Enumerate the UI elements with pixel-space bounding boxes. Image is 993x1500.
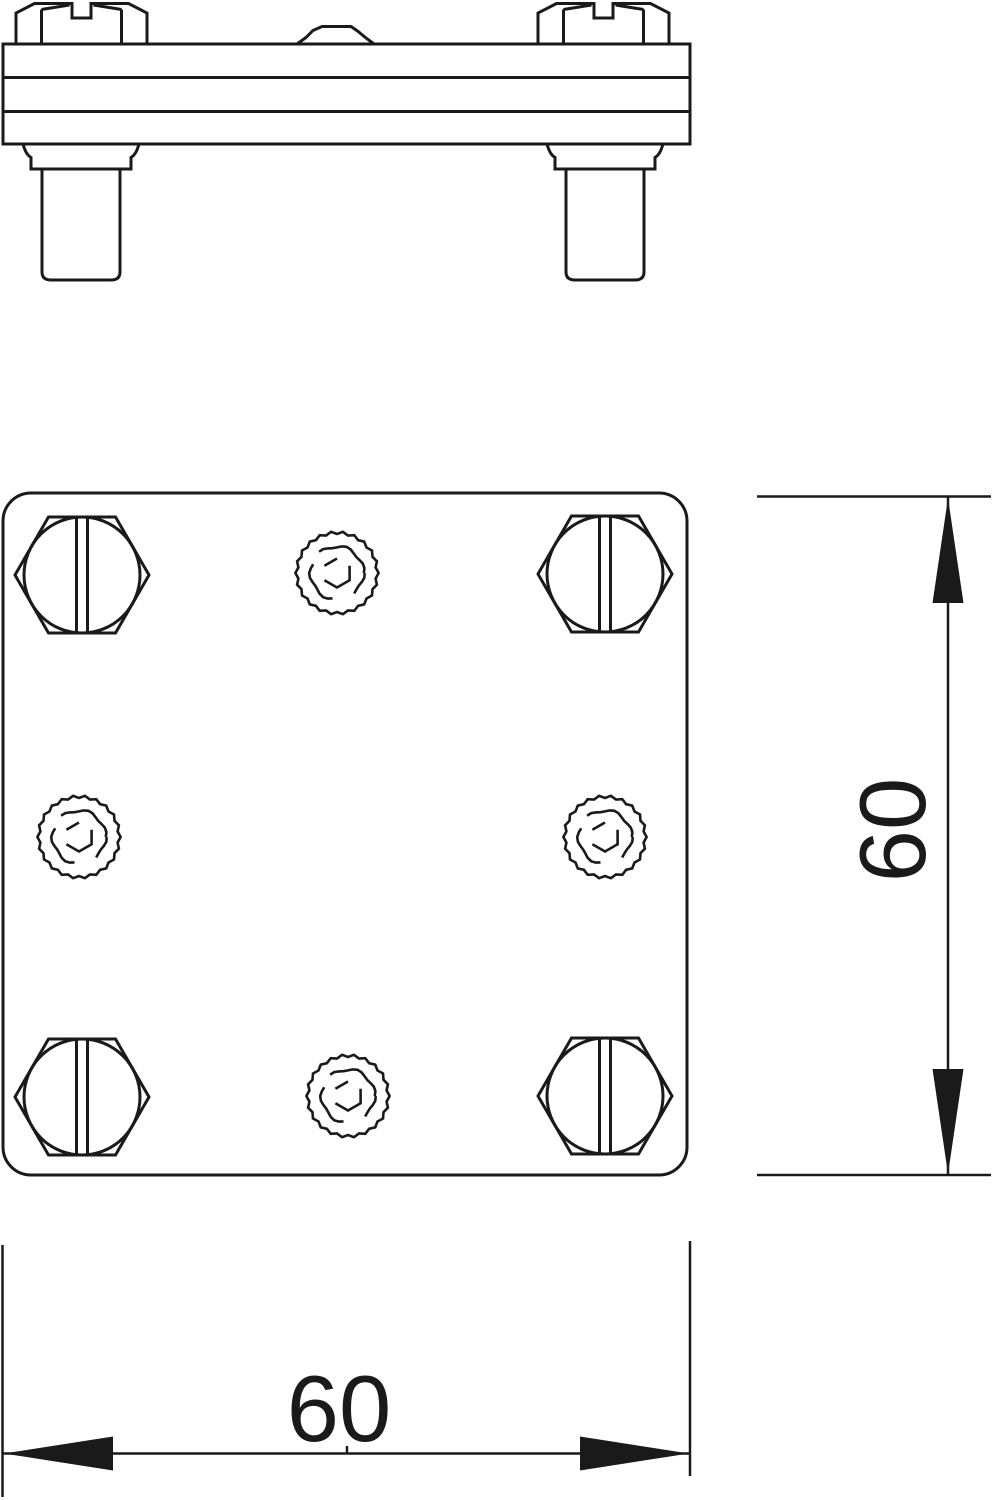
height-dimension: 60 — [757, 497, 991, 1176]
knurled-point-left-icon — [37, 796, 120, 878]
knurled-point-right-icon — [563, 796, 646, 878]
knurled-point-bottom-icon — [306, 1055, 389, 1137]
arrowhead-left-icon — [4, 1437, 113, 1471]
technical-drawing-page: 60 60 — [0, 0, 993, 1500]
width-dimension-label: 60 — [287, 1356, 392, 1461]
height-dimension-label: 60 — [840, 778, 945, 883]
screw-head-right-icon — [538, 4, 669, 45]
arrowhead-down-icon — [933, 1069, 964, 1174]
width-dimension: 60 — [3, 1241, 691, 1497]
knurled-boss-profile — [297, 27, 374, 45]
knurled-point-top-icon — [295, 532, 378, 614]
plan-view — [3, 493, 687, 1175]
connector-drawing: 60 60 — [0, 0, 993, 1500]
hex-bolt-top-left-icon — [15, 517, 149, 633]
side-view — [3, 4, 690, 281]
screw-head-left-icon — [16, 4, 147, 45]
hex-bolt-bottom-right-icon — [538, 1038, 672, 1154]
arrowhead-right-icon — [580, 1437, 689, 1471]
hex-bolt-top-right-icon — [538, 516, 672, 632]
arrowhead-up-icon — [933, 498, 964, 603]
hex-bolt-bottom-left-icon — [15, 1039, 149, 1155]
stud-left-icon — [23, 144, 139, 280]
stud-right-icon — [547, 144, 663, 280]
plate-stack-outline — [3, 44, 690, 144]
